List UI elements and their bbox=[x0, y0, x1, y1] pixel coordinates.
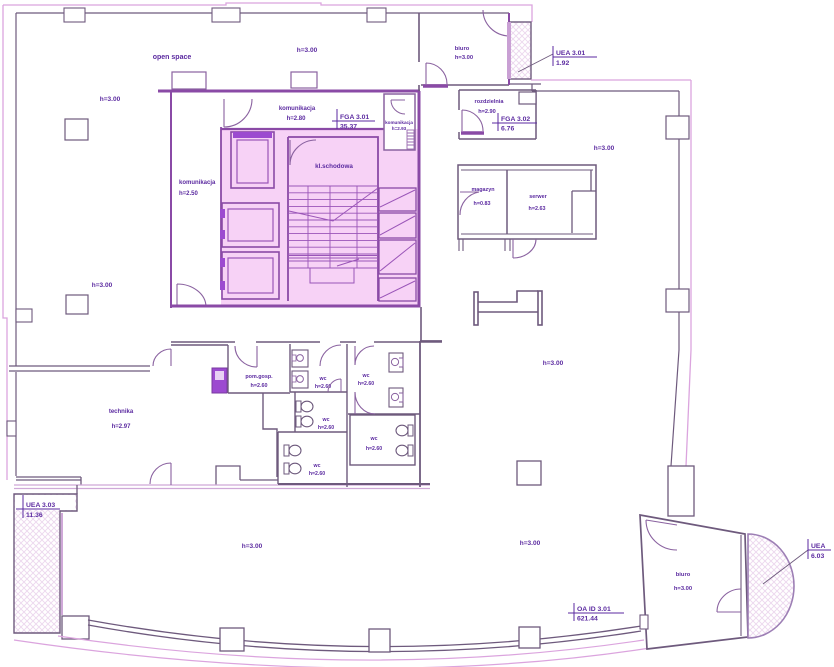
svg-text:UEA: UEA bbox=[811, 543, 825, 550]
svg-text:h=3.00: h=3.00 bbox=[520, 540, 541, 547]
svg-text:biuro: biuro bbox=[455, 46, 470, 52]
svg-text:1.92: 1.92 bbox=[556, 60, 569, 67]
svg-text:6.76: 6.76 bbox=[501, 126, 514, 133]
svg-text:h=2.60: h=2.60 bbox=[309, 471, 325, 477]
svg-text:h=3.00: h=3.00 bbox=[674, 586, 692, 592]
svg-text:wc: wc bbox=[362, 373, 370, 379]
svg-text:11.36: 11.36 bbox=[26, 512, 43, 519]
svg-text:h=2.50: h=2.50 bbox=[179, 191, 199, 197]
svg-text:h=2.60: h=2.60 bbox=[366, 446, 382, 452]
svg-text:kl.schodowa: kl.schodowa bbox=[315, 163, 353, 170]
svg-text:serwer: serwer bbox=[529, 194, 547, 200]
svg-text:h=2.80: h=2.80 bbox=[287, 116, 307, 122]
svg-text:komunikacja: komunikacja bbox=[179, 180, 216, 186]
svg-text:UEA 3.01: UEA 3.01 bbox=[556, 50, 585, 57]
svg-text:h=2.97: h=2.97 bbox=[112, 424, 132, 430]
svg-text:wc: wc bbox=[319, 376, 327, 382]
svg-text:h=3.00: h=3.00 bbox=[100, 96, 121, 103]
svg-text:h=0.83: h=0.83 bbox=[474, 201, 491, 207]
svg-text:komunikacja: komunikacja bbox=[385, 120, 413, 125]
svg-text:OA ID 3.01: OA ID 3.01 bbox=[577, 606, 611, 613]
svg-text:35.37: 35.37 bbox=[340, 124, 357, 131]
svg-text:h=2.93: h=2.93 bbox=[392, 126, 407, 131]
svg-text:h=2.60: h=2.60 bbox=[358, 381, 374, 387]
svg-text:wc: wc bbox=[370, 436, 378, 442]
svg-text:h=3.00: h=3.00 bbox=[594, 145, 615, 152]
svg-text:h=2.60: h=2.60 bbox=[318, 425, 334, 431]
svg-text:h=3.00: h=3.00 bbox=[455, 55, 473, 61]
svg-text:6.03: 6.03 bbox=[811, 553, 824, 560]
svg-text:UEA 3.03: UEA 3.03 bbox=[26, 502, 55, 509]
svg-text:h=3.00: h=3.00 bbox=[92, 282, 113, 289]
svg-text:technika: technika bbox=[109, 409, 134, 415]
svg-text:621.44: 621.44 bbox=[577, 616, 598, 623]
svg-text:FGA 3.01: FGA 3.01 bbox=[340, 114, 369, 121]
svg-text:komunikacja: komunikacja bbox=[279, 106, 316, 112]
svg-text:h=2.63: h=2.63 bbox=[529, 206, 546, 212]
svg-text:h=2.90: h=2.90 bbox=[478, 109, 496, 115]
svg-text:wc: wc bbox=[322, 417, 330, 423]
svg-text:FGA 3.02: FGA 3.02 bbox=[501, 116, 530, 123]
svg-text:rozdzielnia: rozdzielnia bbox=[475, 99, 505, 105]
svg-text:pom.gosp.: pom.gosp. bbox=[245, 374, 273, 380]
svg-text:h=3.00: h=3.00 bbox=[543, 360, 564, 367]
svg-text:h=3.00: h=3.00 bbox=[242, 543, 263, 550]
svg-text:magazyn: magazyn bbox=[471, 187, 494, 193]
svg-text:open space: open space bbox=[153, 54, 192, 61]
svg-text:h=2.60: h=2.60 bbox=[251, 383, 268, 389]
svg-text:biuro: biuro bbox=[676, 572, 691, 578]
svg-text:h=3.00: h=3.00 bbox=[297, 47, 318, 54]
svg-text:wc: wc bbox=[313, 463, 321, 469]
